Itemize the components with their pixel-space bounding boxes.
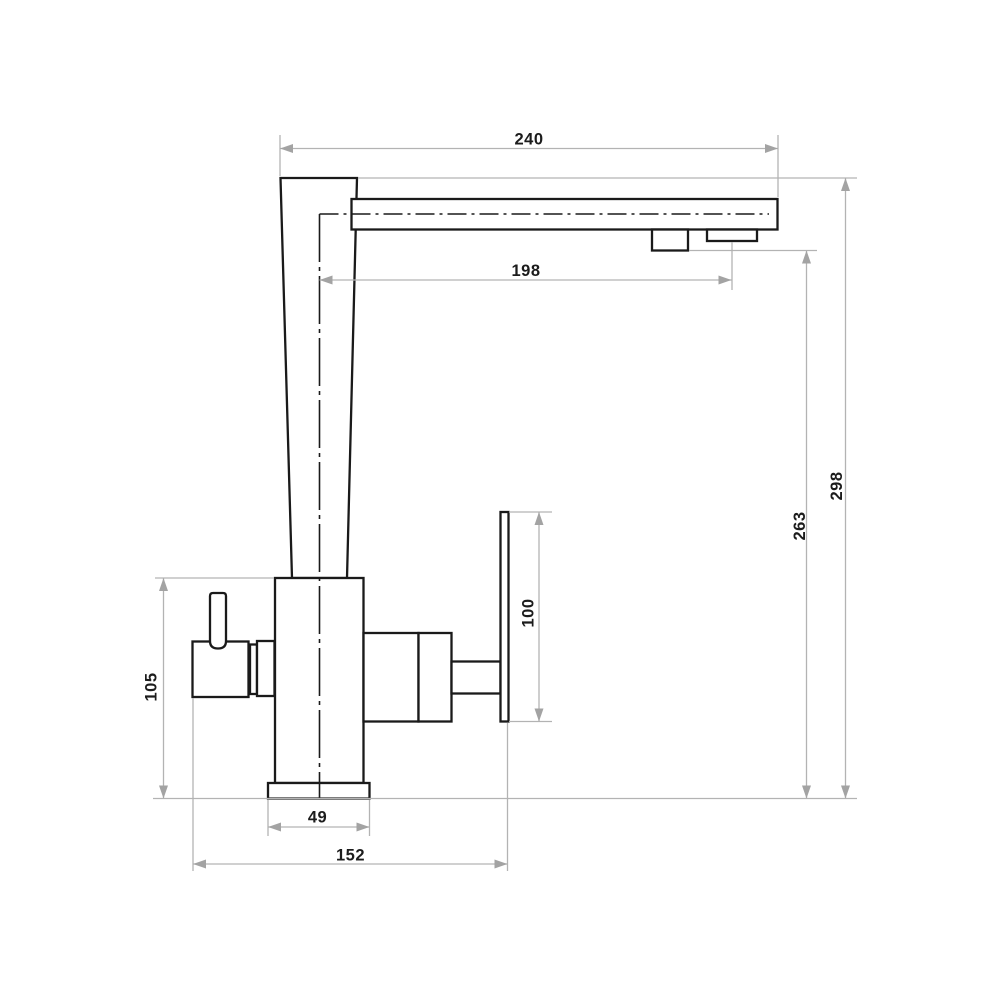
valve-arm xyxy=(364,633,419,722)
arrow-left-icon xyxy=(193,860,206,869)
arrow-up-icon xyxy=(535,512,544,525)
arrow-left-icon xyxy=(280,144,293,153)
arrow-right-icon xyxy=(357,823,370,832)
dim-label-spout-projection: 198 xyxy=(511,262,540,280)
dim-label-outlet-height: 263 xyxy=(791,511,809,540)
arrow-down-icon xyxy=(159,786,168,799)
arrow-right-icon xyxy=(765,144,778,153)
arrowheads-group xyxy=(159,144,850,869)
dim-label-overall-depth: 152 xyxy=(336,847,365,865)
extension-lines-group xyxy=(153,135,857,871)
aerator xyxy=(707,230,757,242)
handle-plate xyxy=(501,512,509,722)
dim-label-spout-reach: 240 xyxy=(514,131,543,149)
dim-label-handle-plate-length: 100 xyxy=(520,598,538,627)
dim-label-base-width: 49 xyxy=(308,809,327,827)
arrow-down-icon xyxy=(802,786,811,799)
arrow-left-icon xyxy=(268,823,281,832)
arrow-down-icon xyxy=(841,786,850,799)
arrow-right-icon xyxy=(719,276,732,285)
handle-stem xyxy=(452,662,501,694)
arrow-right-icon xyxy=(495,860,508,869)
valve-arm-flange xyxy=(419,633,452,722)
side-lever-handle xyxy=(210,593,226,649)
faucet-outline-group xyxy=(193,178,778,799)
dim-label-body-height: 105 xyxy=(143,672,161,701)
side-valve-body xyxy=(193,642,249,698)
dimension-lines-group xyxy=(164,149,846,865)
side-valve-connector xyxy=(257,641,275,696)
technical-drawing-page: 240 198 298 263 100 105 49 152 xyxy=(0,0,1000,1001)
dim-label-total-height: 298 xyxy=(828,471,846,500)
arrow-down-icon xyxy=(535,709,544,722)
spray-outlet-block xyxy=(652,230,688,251)
arrow-up-icon xyxy=(802,251,811,264)
faucet-technical-drawing: 240 198 298 263 100 105 49 152 xyxy=(0,0,1000,1001)
arrow-up-icon xyxy=(841,178,850,191)
arrow-up-icon xyxy=(159,578,168,591)
